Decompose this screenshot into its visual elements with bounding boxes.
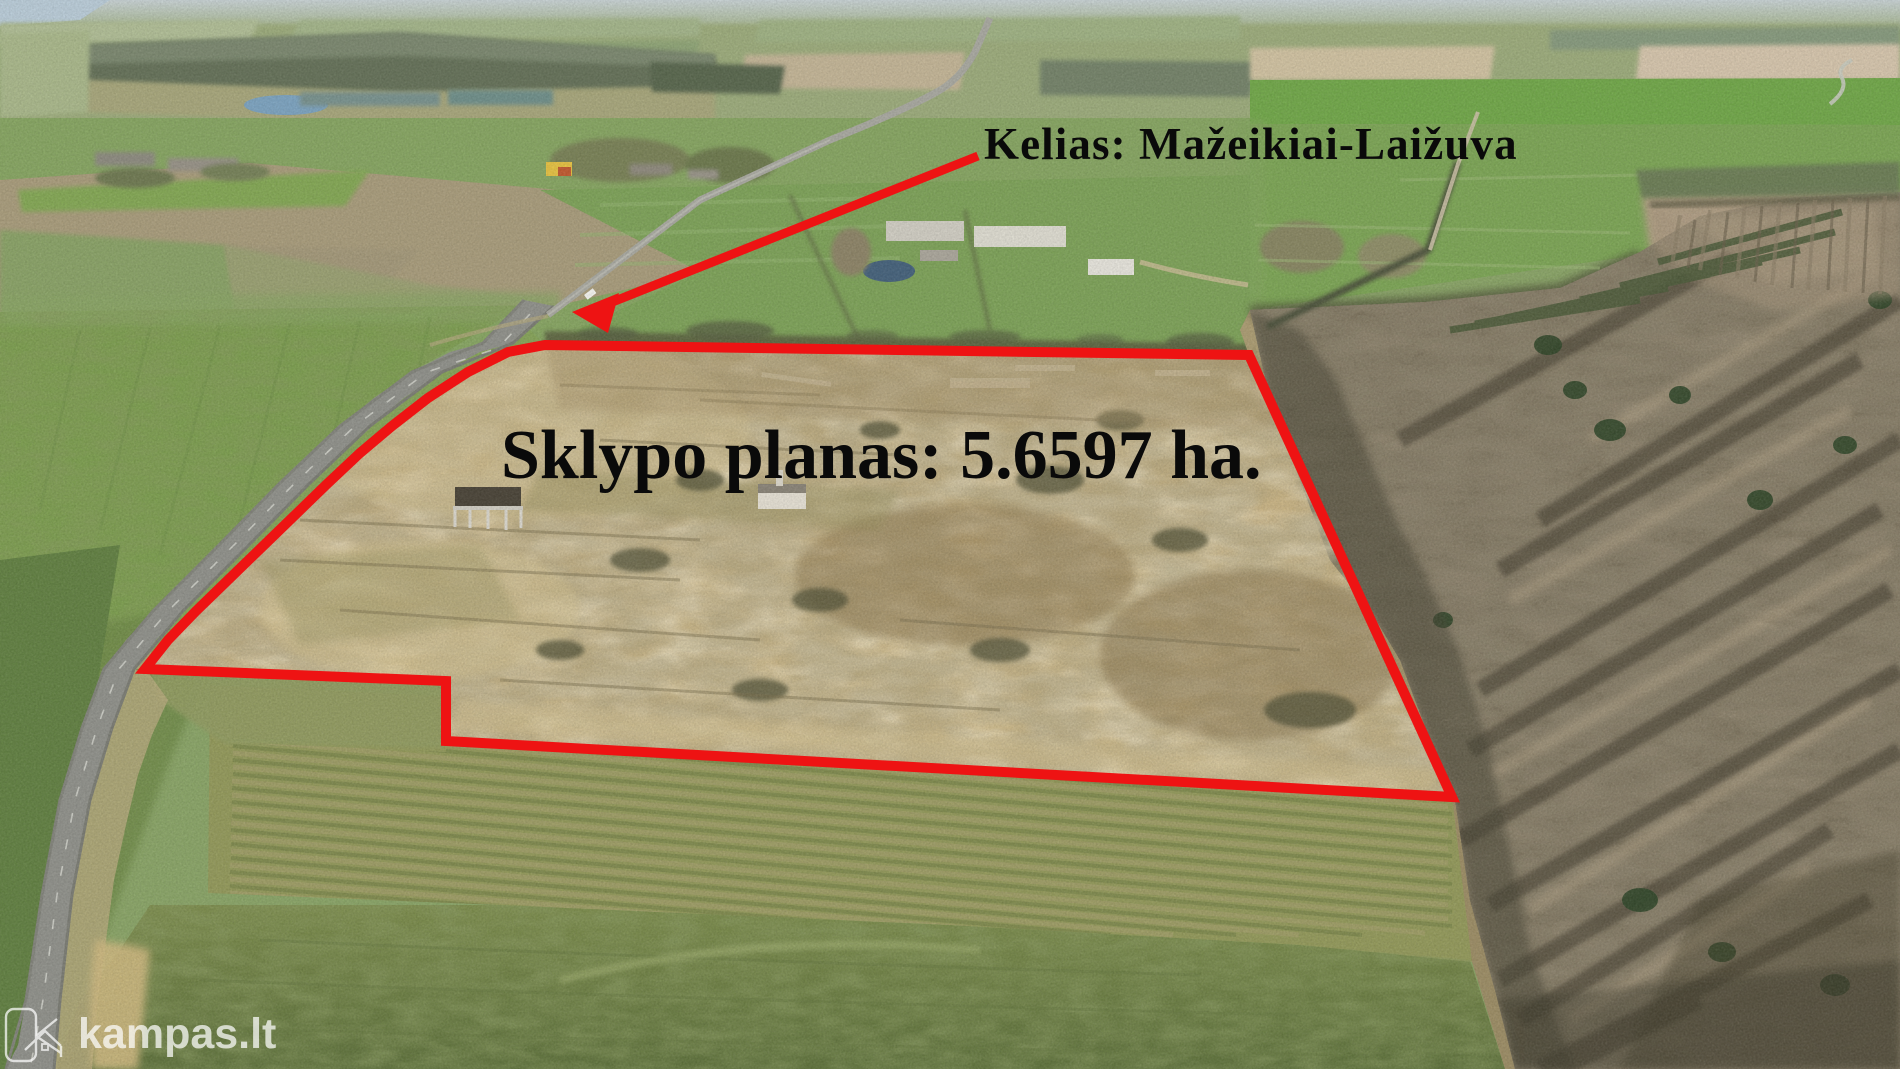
svg-text:kampas.lt: kampas.lt [78, 1010, 276, 1058]
svg-text:Kelias: Mažeikiai-Laižuva: Kelias: Mažeikiai-Laižuva [984, 119, 1518, 169]
svg-text:Sklypo planas: 5.6597 ha.: Sklypo planas: 5.6597 ha. [501, 417, 1262, 494]
